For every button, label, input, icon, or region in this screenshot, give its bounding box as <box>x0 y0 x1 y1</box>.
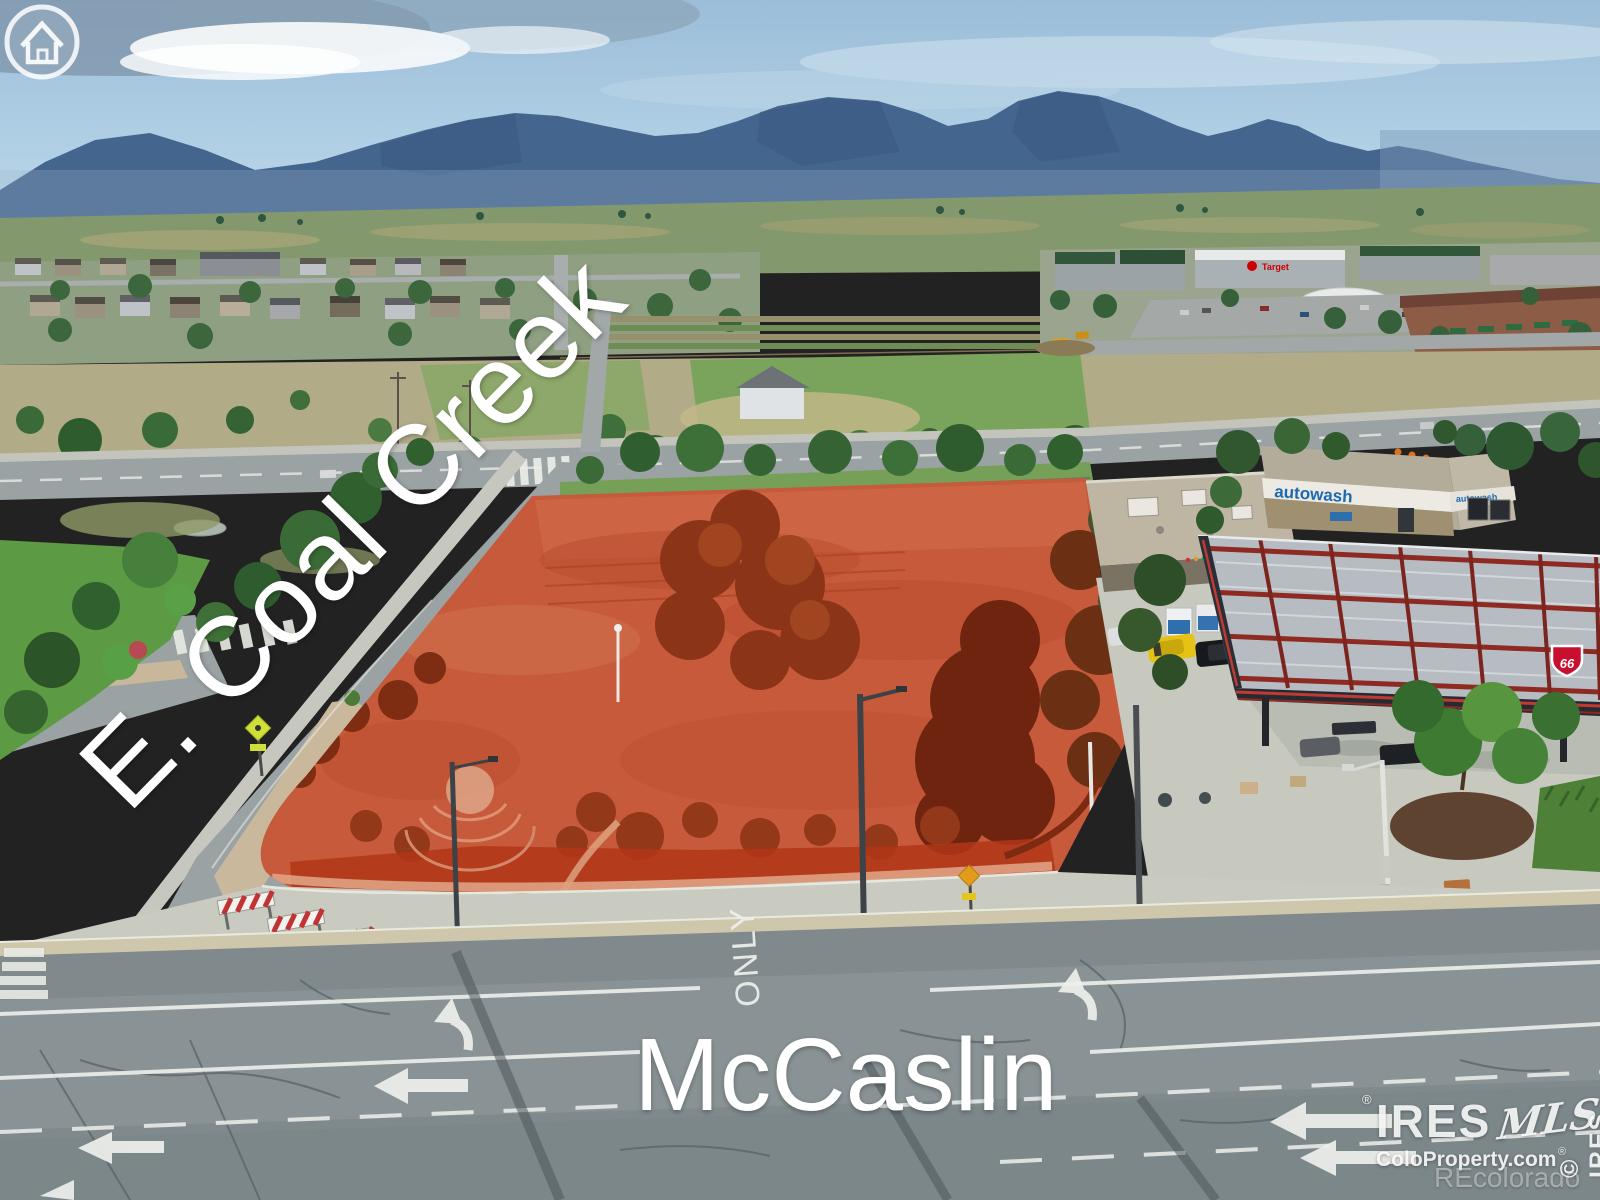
distant-retail-center: Target <box>1040 242 1600 368</box>
street-label-mccaslin: McCaslin <box>634 1016 1058 1134</box>
gas-shield-text: 66 <box>1560 656 1575 671</box>
target-sign-text: Target <box>1262 262 1289 272</box>
watermark-vertical-ires: © IRES <box>1556 1112 1600 1178</box>
watermark-ires: IRES <box>1376 1094 1491 1148</box>
ires-house-logo-icon <box>0 0 84 84</box>
gas-station: autowash autowash <box>1086 412 1600 946</box>
ires-registered-mark: ® <box>1362 1092 1372 1107</box>
aerial-photo: Target <box>0 0 1600 1200</box>
only-pavement-marking: ONLY <box>723 904 768 1008</box>
